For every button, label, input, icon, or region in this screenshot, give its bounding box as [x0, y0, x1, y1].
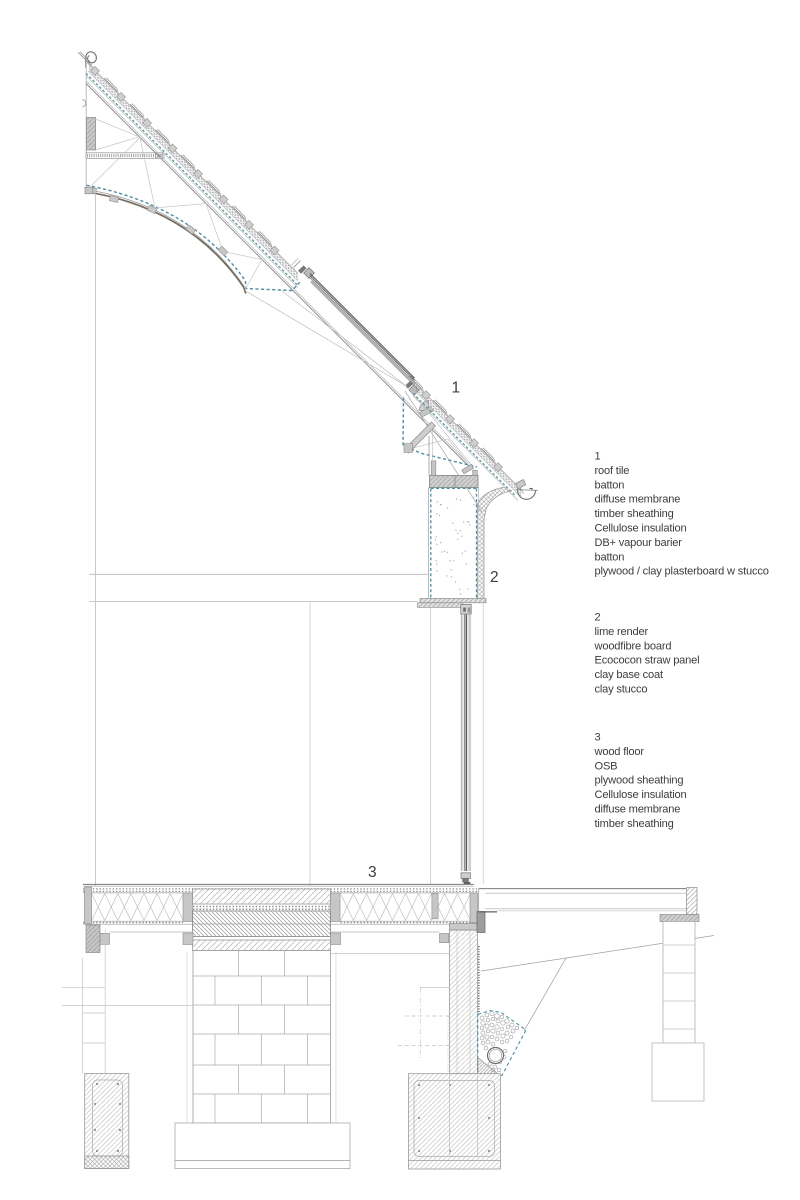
svg-text:2: 2	[490, 569, 499, 586]
svg-text:1: 1	[452, 380, 461, 397]
svg-text:3: 3	[368, 864, 377, 881]
